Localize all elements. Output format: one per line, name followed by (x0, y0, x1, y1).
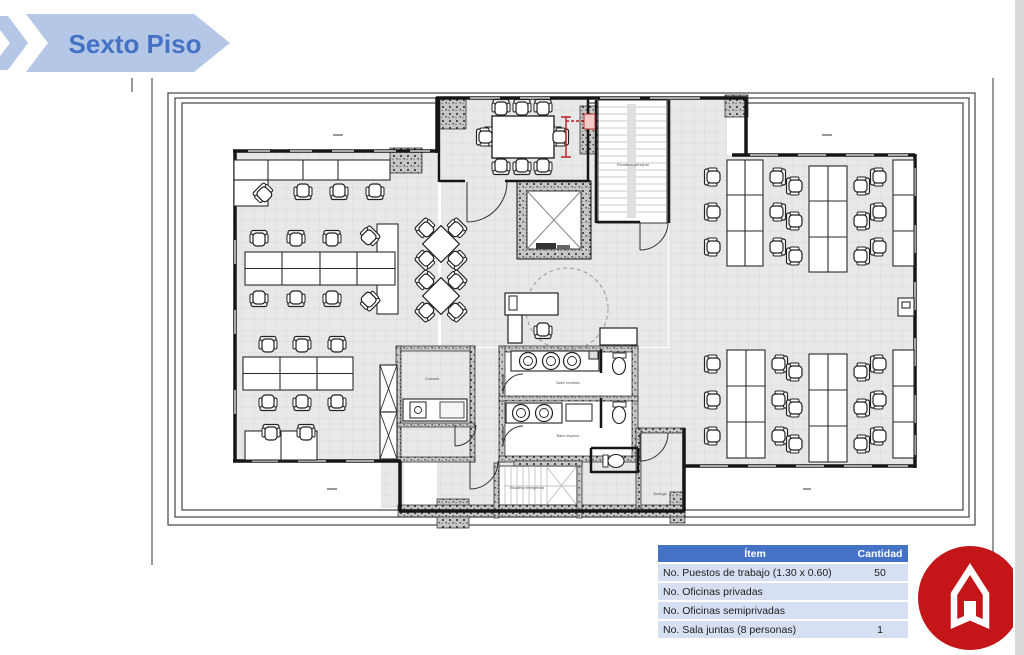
row-item: No. Sala juntas (8 personas) (658, 621, 852, 638)
page-title: Sexto Piso (69, 29, 202, 59)
brand-logo[interactable] (916, 544, 1024, 652)
row-qty (852, 602, 908, 619)
table-row: No. Puestos de trabajo (1.30 x 0.60) 50 (658, 564, 908, 581)
bath-top-label: Baño hombres (556, 381, 580, 385)
summary-header-item: Ítem (658, 545, 852, 562)
emergency-stairs: Escalera emergencia (499, 466, 577, 505)
table-row: No. Oficinas semiprivadas (658, 602, 908, 619)
kitchenette-label: Cocineta (425, 377, 439, 381)
row-qty: 50 (852, 564, 908, 581)
main-stairs-label: Escalera principal (617, 162, 649, 167)
duct-shaft (380, 365, 397, 459)
bath-bottom-label: Baño mujeres (557, 434, 579, 438)
page-edge-strip (1013, 0, 1024, 655)
summary-header-qty: Cantidad (852, 545, 908, 562)
main-stairs: Escalera principal (598, 100, 667, 223)
page: Escalera principal Escalera emergencia (0, 0, 1024, 655)
row-qty (852, 583, 908, 600)
elevator (517, 181, 591, 259)
row-item: No. Oficinas privadas (658, 583, 852, 600)
table-row: No. Oficinas privadas (658, 583, 908, 600)
home-icon-door (964, 601, 976, 619)
banner-chevron-icon (0, 16, 28, 70)
table-row: No. Sala juntas (8 personas) 1 (658, 621, 908, 638)
row-qty: 1 (852, 621, 908, 638)
banner: Sexto Piso (0, 0, 250, 90)
storage-label: Bodega (653, 492, 667, 496)
summary-table: Ítem Cantidad No. Puestos de trabajo (1.… (658, 543, 908, 640)
row-item: No. Oficinas semiprivadas (658, 602, 852, 619)
emergency-stairs-label: Escalera emergencia (510, 486, 544, 490)
row-item: No. Puestos de trabajo (1.30 x 0.60) (658, 564, 852, 581)
